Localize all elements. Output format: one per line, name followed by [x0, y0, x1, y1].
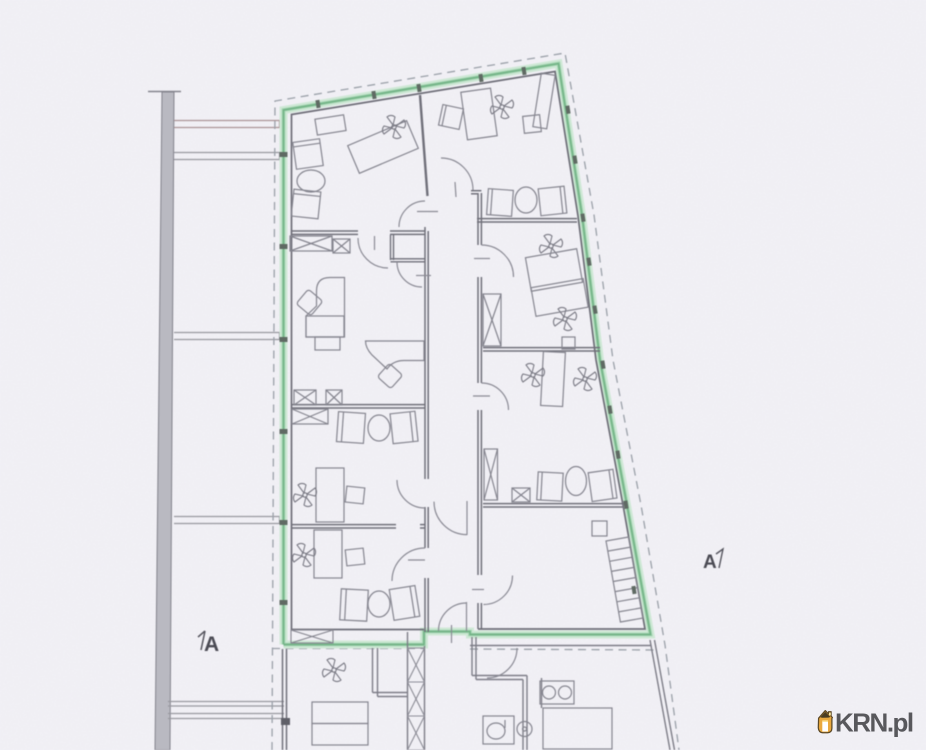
svg-text:A: A	[703, 552, 717, 573]
svg-text:A: A	[204, 633, 219, 656]
svg-text:KRN.pl: KRN.pl	[835, 708, 913, 738]
